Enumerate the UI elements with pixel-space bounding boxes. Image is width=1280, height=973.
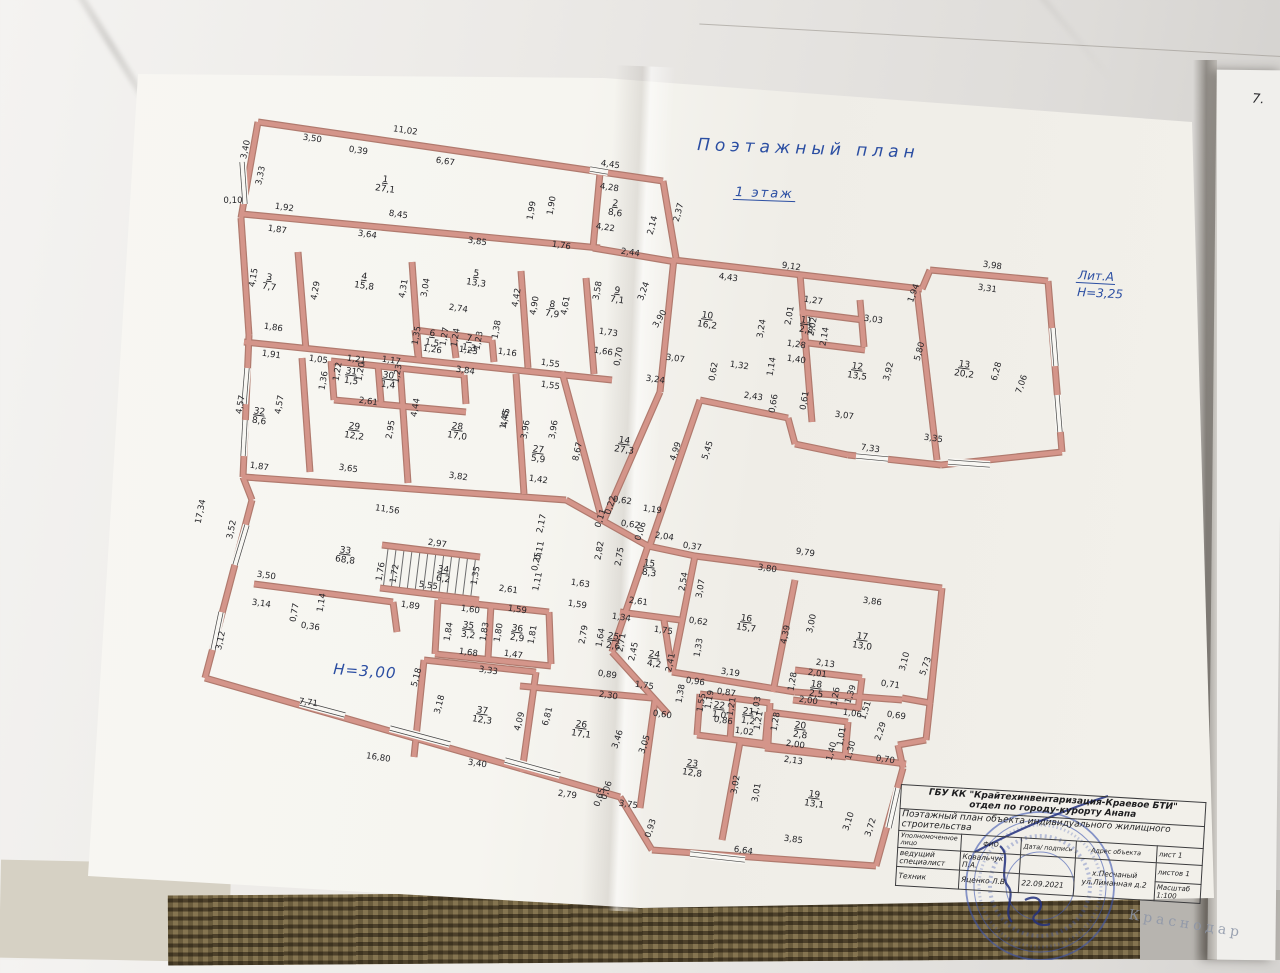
room-area: 16,2 xyxy=(696,319,717,332)
dimension-label: 3,40 xyxy=(467,758,487,771)
dimension-label: 1,76 xyxy=(551,240,571,253)
room-area: 5,9 xyxy=(530,454,546,466)
room-area: 13,0 xyxy=(851,640,873,653)
dimension-label: 0,39 xyxy=(348,145,368,158)
dimension-label: 1,02 xyxy=(734,726,754,739)
dimension-label: 1,21 xyxy=(725,696,738,717)
dimension-label: 1,33 xyxy=(692,637,705,658)
dimension-label: 1,60 xyxy=(460,604,480,617)
dimension-label: 3,96 xyxy=(519,419,532,440)
room-area: 2,9 xyxy=(509,633,525,645)
room-area: 1,0 xyxy=(711,710,727,722)
walls-layer xyxy=(205,122,1062,866)
room-area: 12,3 xyxy=(471,714,492,727)
dimension-label: 3,04 xyxy=(419,277,432,298)
dimension-label: 6,81 xyxy=(541,706,556,727)
title-block: ГБУ КК "Крайтехинвентаризация-Краевое БТ… xyxy=(895,784,1207,904)
dimension-label: 3,10 xyxy=(898,651,913,672)
room-area: 13,5 xyxy=(846,370,867,383)
dimension-label: 1,34 xyxy=(611,612,631,625)
dimension-label: 3,75 xyxy=(618,799,638,812)
dimension-label: 2,43 xyxy=(743,391,763,404)
room-area: 2,8 xyxy=(798,325,814,337)
room-area: 12,2 xyxy=(343,430,364,443)
room-area: 8,6 xyxy=(607,208,623,220)
dimension-label: 0,36 xyxy=(300,621,320,634)
dimension-label: 4,43 xyxy=(718,272,738,285)
dimension-label: 1,38 xyxy=(674,683,687,704)
room-area: 7,9 xyxy=(544,309,560,321)
dimension-label: 11,02 xyxy=(392,124,418,137)
room-area: 17,1 xyxy=(570,728,591,741)
dimension-label: 2,44 xyxy=(620,247,640,260)
dimension-label: 2,82 xyxy=(593,540,606,561)
room-area: 13,3 xyxy=(465,277,486,290)
dimension-label: 0,62 xyxy=(688,616,708,629)
dimension-label: 1,80 xyxy=(492,622,505,643)
dimension-label: 7,06 xyxy=(1014,374,1030,395)
dimension-label: 2,01 xyxy=(807,668,827,681)
dimension-label: 2,61 xyxy=(358,396,378,409)
dimension-label: 3,24 xyxy=(636,281,652,302)
dimension-label: 2,79 xyxy=(557,789,577,802)
dimension-label: 3,10 xyxy=(841,811,856,832)
dimension-label: 1,63 xyxy=(570,578,590,591)
dimension-label: 4,15 xyxy=(247,267,260,288)
dimension-label: 3,58 xyxy=(591,280,604,301)
dimension-label: 1,28 xyxy=(786,339,806,352)
dimension-label: 11,56 xyxy=(374,503,400,516)
room-area: 20,2 xyxy=(953,368,974,381)
room-area: 17,0 xyxy=(446,430,468,443)
dimension-label: 3,07 xyxy=(834,410,854,423)
dimension-label: 1,35 xyxy=(469,565,482,586)
row-role: Техник xyxy=(895,867,959,890)
dimension-label: 1,22 xyxy=(331,361,344,382)
room-area: 13,1 xyxy=(803,798,824,811)
dimension-label: 1,28 xyxy=(769,711,782,732)
row-date: 22.09.2021 xyxy=(1018,874,1074,896)
dimension-label: 5,45 xyxy=(700,440,715,461)
dimension-label: 1,55 xyxy=(540,380,560,393)
dimension-label: 4,31 xyxy=(397,278,410,299)
dimension-label: 3,52 xyxy=(225,519,239,540)
dimension-label: 4,44 xyxy=(409,397,422,418)
dimension-label: 1,35 xyxy=(410,325,423,346)
dimension-label: 4,22 xyxy=(595,222,615,235)
dimension-label: 2,37 xyxy=(672,202,687,223)
dimension-label: 2,45 xyxy=(627,641,641,662)
dimension-label: 1,19 xyxy=(642,504,662,517)
dimension-label: 6,67 xyxy=(435,156,455,169)
dimension-label: 0,71 xyxy=(880,679,900,692)
room-area: 15,8 xyxy=(353,280,375,293)
dimension-label: 3,00 xyxy=(805,613,819,634)
dimension-label: 0,70 xyxy=(612,346,625,367)
dimension-label: 1,89 xyxy=(400,600,420,613)
dimension-label: 4,39 xyxy=(779,624,793,645)
dimension-label: 0,62 xyxy=(707,361,720,382)
room-area: 2,5 xyxy=(808,689,824,701)
dimension-label: 1,73 xyxy=(598,327,618,340)
room-area: 1,2 xyxy=(740,716,756,728)
title-block-table: ГБУ КК "Крайтехинвентаризация-Краевое БТ… xyxy=(895,784,1207,904)
dimension-label: 0,10 xyxy=(223,196,242,206)
dimension-label: 4,90 xyxy=(528,295,541,316)
dimension-label: 1,87 xyxy=(249,461,269,474)
dimension-label: 1,87 xyxy=(267,224,287,237)
object-address: х.Песчаный ул.Лиманная д.2 xyxy=(1073,858,1156,901)
dimension-label: 1,75 xyxy=(653,625,673,638)
dimension-label: 3,01 xyxy=(750,782,763,803)
dimension-label: 0,89 xyxy=(597,669,617,682)
dimension-label: 2,14 xyxy=(646,215,661,236)
dimension-label: 3,85 xyxy=(783,834,803,847)
blue-annotation: Лит.А xyxy=(1077,268,1115,284)
dimension-label: 1,59 xyxy=(567,599,587,612)
dimension-label: 2,13 xyxy=(783,755,803,768)
dimension-label: 1,90 xyxy=(545,195,558,216)
dimension-label: 2,79 xyxy=(577,624,590,645)
dimension-label: 1,42 xyxy=(528,474,548,487)
dimension-label: 2,30 xyxy=(598,690,618,703)
dimension-label: 0,93 xyxy=(643,818,658,839)
dimension-label: 1,84 xyxy=(442,621,455,642)
dimension-label: 3,14 xyxy=(251,598,271,611)
dimension-label: 1,66 xyxy=(593,346,613,359)
dimension-label: 3,80 xyxy=(757,563,777,576)
dimension-label: 3,07 xyxy=(694,578,707,599)
dimension-label: 3,50 xyxy=(302,133,322,146)
dimension-label: 3,07 xyxy=(665,353,685,366)
dimension-label: 2,01 xyxy=(783,305,796,326)
dimension-label: 3,85 xyxy=(467,236,487,249)
dimension-label: 3,33 xyxy=(478,665,498,678)
dimension-label: 2,95 xyxy=(384,419,397,440)
scale-cell: Масштаб 1:100 xyxy=(1154,882,1201,904)
dimension-label: 0,25 xyxy=(530,551,544,572)
room-area: 4,2 xyxy=(646,659,662,671)
dimension-label: 0,69 xyxy=(886,710,906,723)
dimension-label: 3,33 xyxy=(254,165,268,186)
room-area: 27,3 xyxy=(613,444,634,457)
dimension-label: 6,28 xyxy=(990,361,1005,382)
dimension-label: 3,24 xyxy=(645,374,665,387)
dimension-label: 4,61 xyxy=(559,295,572,316)
dimension-label: 3,98 xyxy=(982,260,1002,273)
room-area: 27,1 xyxy=(374,183,395,196)
dimension-label: 3,02 xyxy=(729,774,742,795)
room-area: 8,6 xyxy=(251,416,267,428)
dimension-label: 1,36 xyxy=(317,370,330,391)
dimension-label: 2,75 xyxy=(613,546,626,567)
room-area: 1,5 xyxy=(424,338,440,350)
dimension-label: 3,03 xyxy=(863,314,883,327)
dimension-label: 3,65 xyxy=(338,463,358,476)
dimension-label: 1,86 xyxy=(263,322,283,335)
dimension-label: 16,80 xyxy=(365,751,391,764)
dimension-label: 2,04 xyxy=(654,531,674,544)
dimension-label: 1,75 xyxy=(634,680,654,693)
room-area: 12,8 xyxy=(681,767,703,780)
dimension-label: 1,38 xyxy=(490,319,503,340)
dimension-label: 1,55 xyxy=(540,358,560,371)
windows-layer xyxy=(211,162,1062,862)
dimension-label: 3,82 xyxy=(448,471,468,484)
photo-of-floorplan-document: { "plan": { "title": "Поэтажный план", "… xyxy=(0,0,1280,960)
room-area: 1,3 xyxy=(461,343,477,355)
room-area: 7,7 xyxy=(261,282,277,294)
dimension-label: 1,45 xyxy=(498,409,511,430)
dimension-label: 0,96 xyxy=(685,676,705,689)
dimension-label: 2,61 xyxy=(498,584,518,597)
room-area: 7,1 xyxy=(609,295,625,307)
dimension-label: 3,46 xyxy=(610,729,625,750)
dimension-label: 1,92 xyxy=(274,202,294,215)
room-area: 2,6 xyxy=(605,641,621,653)
dimension-label: 1,11 xyxy=(531,571,545,592)
dimension-label: 3,18 xyxy=(433,694,448,715)
dimension-label: 1,91 xyxy=(261,349,281,362)
dimension-label: 4,28 xyxy=(599,182,619,195)
dimension-label: 1,40 xyxy=(786,354,806,367)
dimension-label: 0,70 xyxy=(875,754,895,767)
dimension-label: 1,14 xyxy=(315,592,328,613)
dimension-label: 2,17 xyxy=(535,513,549,534)
dimension-label: 2,29 xyxy=(873,721,888,742)
blue-annotation: Н=3,25 xyxy=(1077,285,1123,301)
dimension-label: 3,35 xyxy=(923,433,943,446)
room-area: 2,8 xyxy=(792,730,808,742)
dimension-label: 1,59 xyxy=(507,604,527,617)
dimension-label: 4,57 xyxy=(273,394,286,415)
dimension-label: 0,66 xyxy=(767,393,780,414)
dimension-label: 3,64 xyxy=(357,229,377,242)
room-area: 1,5 xyxy=(343,376,359,388)
dimension-label: 3,31 xyxy=(977,283,997,296)
dimension-label: 3,92 xyxy=(882,361,897,382)
dimension-label: 1,27 xyxy=(803,295,823,308)
dimension-label: 2,74 xyxy=(448,303,468,316)
room-area: 6,2 xyxy=(435,574,451,586)
dimension-label: 9,79 xyxy=(795,547,815,560)
row-fio: Яценко Л.В. xyxy=(958,870,1019,893)
dimension-label: 1,14 xyxy=(765,356,778,377)
dimension-label: 8,45 xyxy=(388,209,408,222)
dimension-label: 4,29 xyxy=(309,280,322,301)
dimension-label: 3,96 xyxy=(547,419,560,440)
dimension-label: 3,86 xyxy=(862,596,882,609)
blue-annotation: Поэтажный план xyxy=(697,135,920,163)
room-area: 1,4 xyxy=(380,380,396,392)
dimension-label: 1,05 xyxy=(308,354,328,367)
dimension-label: 3,24 xyxy=(755,318,768,339)
dimension-label: 1,99 xyxy=(525,200,538,221)
dimension-label: 3,72 xyxy=(863,817,878,838)
room-area: 15,7 xyxy=(735,622,756,635)
dimension-label: 0,77 xyxy=(288,602,301,623)
room-area: 68,8 xyxy=(334,554,356,567)
blue-annotation: Н=3,00 xyxy=(333,660,397,682)
room-area: 3,2 xyxy=(460,630,476,642)
dimension-label: 3,50 xyxy=(256,570,276,583)
dimension-label: 1,81 xyxy=(526,624,539,645)
dimension-label: 17,34 xyxy=(194,499,209,525)
room-area: 8,3 xyxy=(641,568,657,580)
dimension-label: 1,32 xyxy=(729,360,749,373)
dimension-label: 1,16 xyxy=(497,347,517,360)
